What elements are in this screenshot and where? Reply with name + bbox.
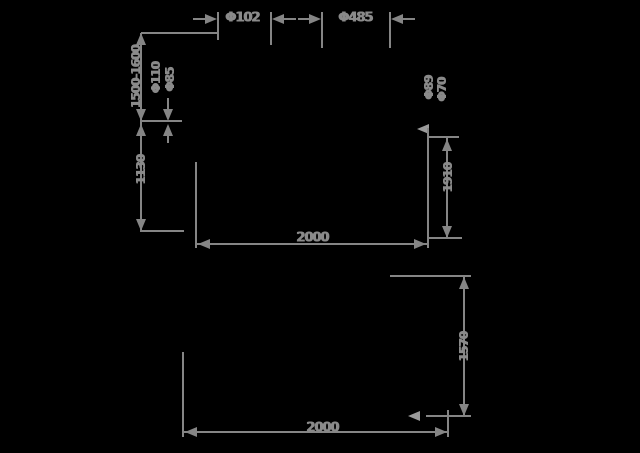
extension-line: [195, 162, 197, 248]
dim-text-mid-height: 1130: [135, 155, 147, 184]
arrowhead-right-icon: [205, 14, 217, 24]
extension-line: [321, 12, 323, 48]
arrowhead-right-icon: [435, 427, 447, 437]
arrowhead-left-icon: [185, 427, 197, 437]
ground-line: [140, 230, 184, 232]
dim-text-height-range: 1500-1600: [130, 46, 142, 109]
dim-text-right-height: 1910: [442, 163, 454, 192]
arrowhead-left-icon: [198, 239, 210, 249]
leader-line-top: [141, 32, 218, 34]
dim-text-right-tube-1: Φ89: [423, 76, 435, 100]
arrowhead-up-icon: [459, 277, 469, 289]
arrowhead-right-icon: [414, 239, 426, 249]
arrowhead-up-icon: [442, 139, 452, 151]
dim-text-left-tube-1: Φ110: [150, 62, 162, 93]
dim-text-front-height: 1570: [458, 332, 470, 361]
technical-dimension-drawing: Φ102 Φ485 1500-1600 1130 Φ110 Φ85 Φ89 Φ7…: [0, 0, 640, 453]
tick-line: [140, 120, 182, 122]
arrowhead-left-icon: [272, 14, 284, 24]
arrowhead-left-icon: [408, 411, 420, 421]
arrowhead-down-icon: [163, 109, 173, 121]
arrow-tail: [284, 18, 296, 20]
extension-line: [182, 352, 184, 437]
dim-text-front-width: 2000: [306, 422, 338, 435]
dim-text-right-tube-2: Φ70: [436, 78, 448, 102]
extension-line: [217, 12, 219, 40]
arrowhead-right-icon: [309, 14, 321, 24]
dim-text-ring-diameter: Φ485: [338, 12, 372, 25]
arrowhead-up-icon: [136, 33, 146, 45]
ground-line: [427, 237, 462, 239]
arrowhead-up-icon: [136, 124, 146, 136]
arrowhead-left-icon: [391, 14, 403, 24]
tick-line: [427, 136, 459, 138]
extension-line: [427, 128, 429, 248]
dim-text-left-tube-2: Φ85: [164, 68, 176, 92]
arrow-tail: [167, 135, 169, 143]
dim-text-pole-diameter: Φ102: [225, 12, 259, 25]
arrow-tail: [403, 18, 415, 20]
dim-text-top-width: 2000: [296, 232, 328, 245]
